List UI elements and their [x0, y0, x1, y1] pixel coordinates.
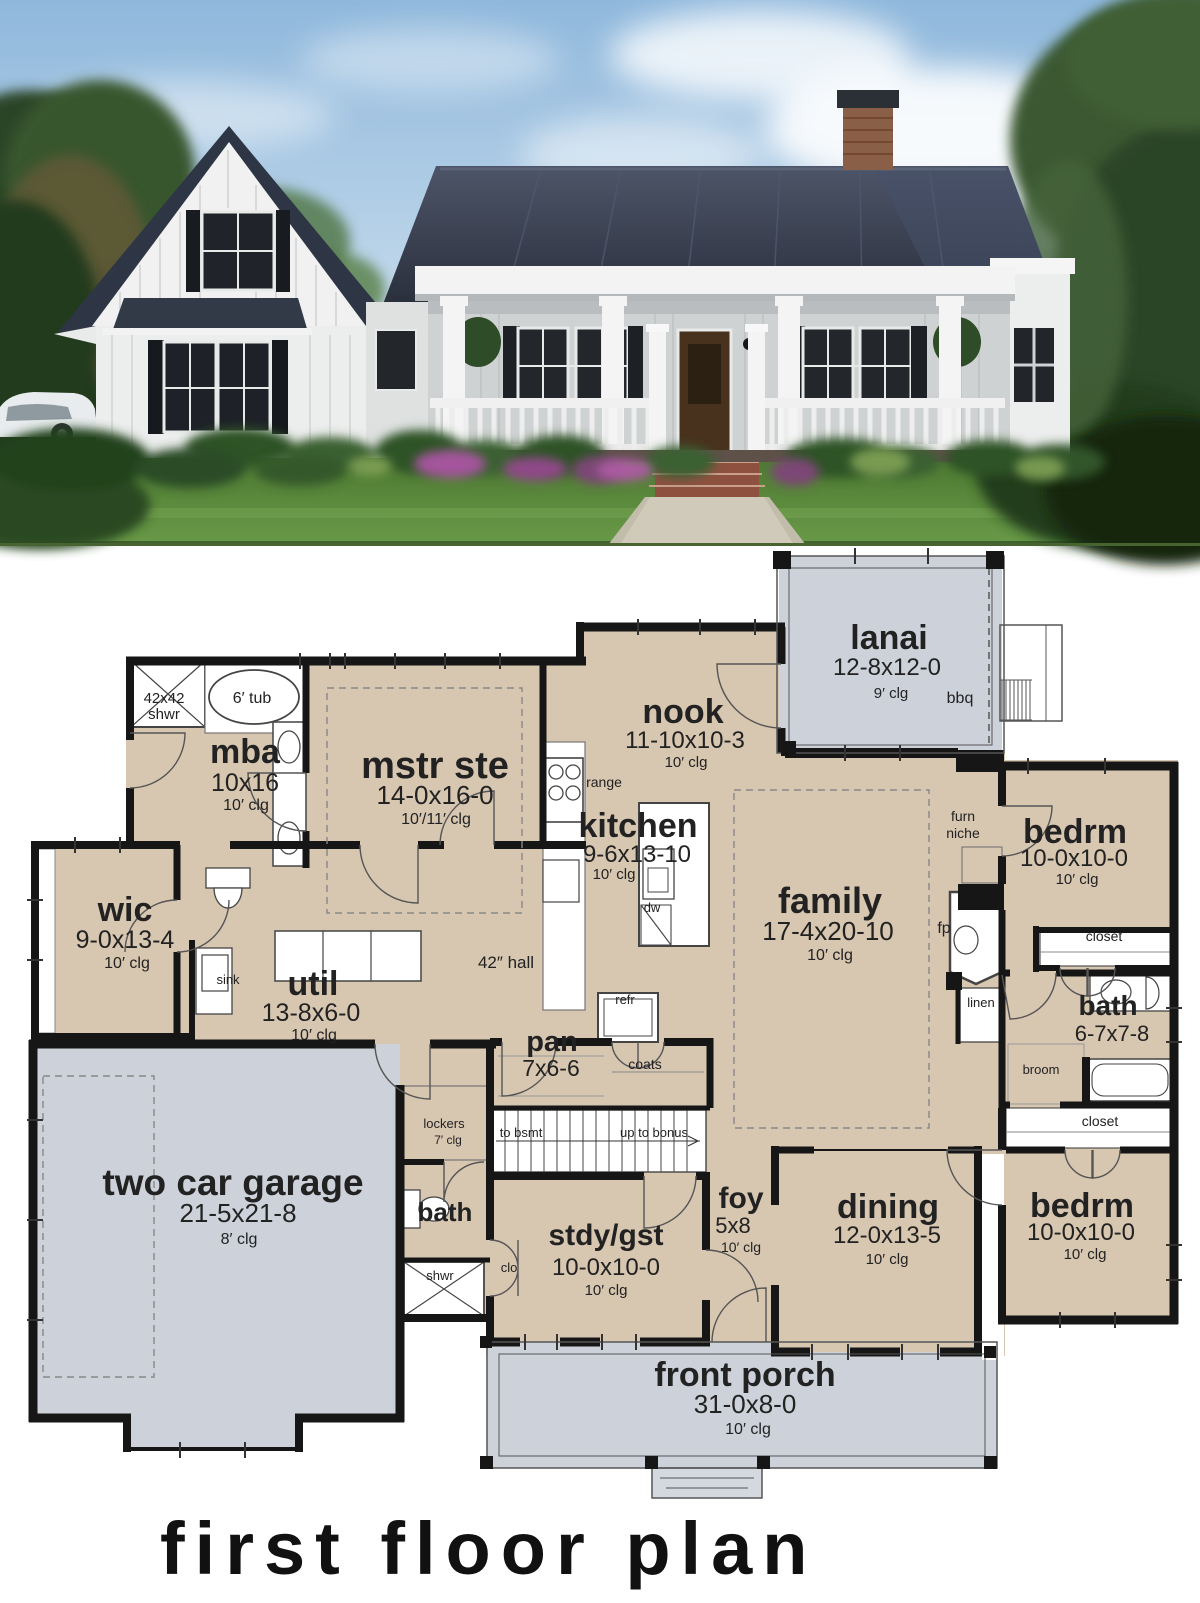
svg-text:10x16: 10x16: [211, 769, 279, 797]
svg-text:10′ clg: 10′ clg: [807, 947, 853, 964]
svg-text:12-8x12-0: 12-8x12-0: [833, 654, 941, 681]
svg-text:10-0x10-0: 10-0x10-0: [1027, 1219, 1135, 1246]
svg-text:10-0x10-0: 10-0x10-0: [1020, 845, 1128, 872]
svg-text:13-8x6-0: 13-8x6-0: [262, 999, 361, 1027]
svg-text:two car garage: two car garage: [102, 1162, 363, 1203]
svg-text:sink: sink: [216, 972, 240, 987]
svg-text:10′ clg: 10′ clg: [291, 1027, 337, 1044]
svg-text:bath: bath: [418, 1197, 473, 1227]
svg-text:11-10x10-3: 11-10x10-3: [625, 727, 745, 754]
svg-text:clo: clo: [501, 1260, 518, 1275]
svg-text:fp: fp: [937, 920, 950, 937]
svg-text:21-5x21-8: 21-5x21-8: [179, 1198, 296, 1228]
svg-text:nook: nook: [642, 693, 723, 731]
svg-text:8′ clg: 8′ clg: [221, 1231, 258, 1248]
svg-text:pan: pan: [526, 1026, 578, 1058]
svg-text:42″ hall: 42″ hall: [478, 953, 534, 972]
svg-text:wic: wic: [97, 891, 153, 929]
svg-text:10′ clg: 10′ clg: [104, 955, 150, 972]
svg-text:to bsmt: to bsmt: [500, 1125, 543, 1140]
svg-text:broom: broom: [1023, 1062, 1060, 1077]
svg-text:lanai: lanai: [850, 619, 927, 657]
svg-text:10′ clg: 10′ clg: [1064, 1246, 1107, 1263]
svg-text:shwr: shwr: [148, 706, 180, 723]
svg-text:9-0x13-4: 9-0x13-4: [76, 926, 175, 954]
svg-text:10′ clg: 10′ clg: [585, 1282, 628, 1299]
svg-text:17-4x20-10: 17-4x20-10: [762, 916, 894, 946]
svg-text:14-0x16-0: 14-0x16-0: [376, 780, 493, 810]
svg-text:10′ clg: 10′ clg: [725, 1421, 771, 1438]
svg-text:10′ clg: 10′ clg: [1056, 871, 1099, 888]
svg-text:util: util: [288, 965, 339, 1003]
svg-text:31-0x8-0: 31-0x8-0: [694, 1389, 797, 1419]
svg-text:furn: furn: [951, 808, 975, 824]
svg-text:foy: foy: [719, 1182, 764, 1215]
svg-text:9-6x13-10: 9-6x13-10: [583, 841, 691, 868]
svg-text:10′ clg: 10′ clg: [665, 754, 708, 771]
svg-text:bath: bath: [1078, 990, 1137, 1021]
svg-text:10′ clg: 10′ clg: [223, 797, 269, 814]
svg-text:5x8: 5x8: [715, 1213, 750, 1238]
svg-text:refr: refr: [615, 992, 635, 1007]
svg-text:lockers: lockers: [423, 1116, 465, 1131]
svg-text:closet: closet: [1082, 1113, 1119, 1129]
svg-text:7x6-6: 7x6-6: [522, 1055, 580, 1081]
svg-text:family: family: [778, 880, 882, 921]
svg-text:6′ tub: 6′ tub: [233, 690, 272, 707]
svg-text:10-0x10-0: 10-0x10-0: [552, 1254, 660, 1281]
svg-text:6-7x7-8: 6-7x7-8: [1075, 1021, 1150, 1046]
svg-text:kitchen: kitchen: [578, 807, 697, 845]
svg-text:42x42: 42x42: [144, 690, 185, 707]
svg-text:up to bonus: up to bonus: [620, 1125, 688, 1140]
svg-text:linen: linen: [967, 995, 994, 1010]
svg-text:dining: dining: [837, 1188, 939, 1226]
svg-text:dw: dw: [644, 900, 661, 915]
svg-text:9′ clg: 9′ clg: [874, 685, 909, 702]
svg-text:first floor plan: first floor plan: [160, 1507, 817, 1590]
svg-text:coats: coats: [628, 1056, 661, 1072]
svg-text:10′ clg: 10′ clg: [593, 866, 636, 883]
svg-text:10′ clg: 10′ clg: [721, 1239, 761, 1255]
svg-text:niche: niche: [946, 825, 980, 841]
svg-text:range: range: [586, 774, 622, 790]
svg-text:10′/11′ clg: 10′/11′ clg: [401, 811, 471, 828]
svg-text:12-0x13-5: 12-0x13-5: [833, 1222, 941, 1249]
svg-text:closet: closet: [1086, 928, 1123, 944]
svg-text:stdy/gst: stdy/gst: [548, 1219, 663, 1252]
svg-text:shwr: shwr: [426, 1268, 454, 1283]
svg-text:bbq: bbq: [947, 690, 974, 707]
svg-text:10′ clg: 10′ clg: [866, 1251, 909, 1268]
svg-text:mba: mba: [210, 733, 281, 771]
svg-text:7′ clg: 7′ clg: [434, 1133, 462, 1147]
